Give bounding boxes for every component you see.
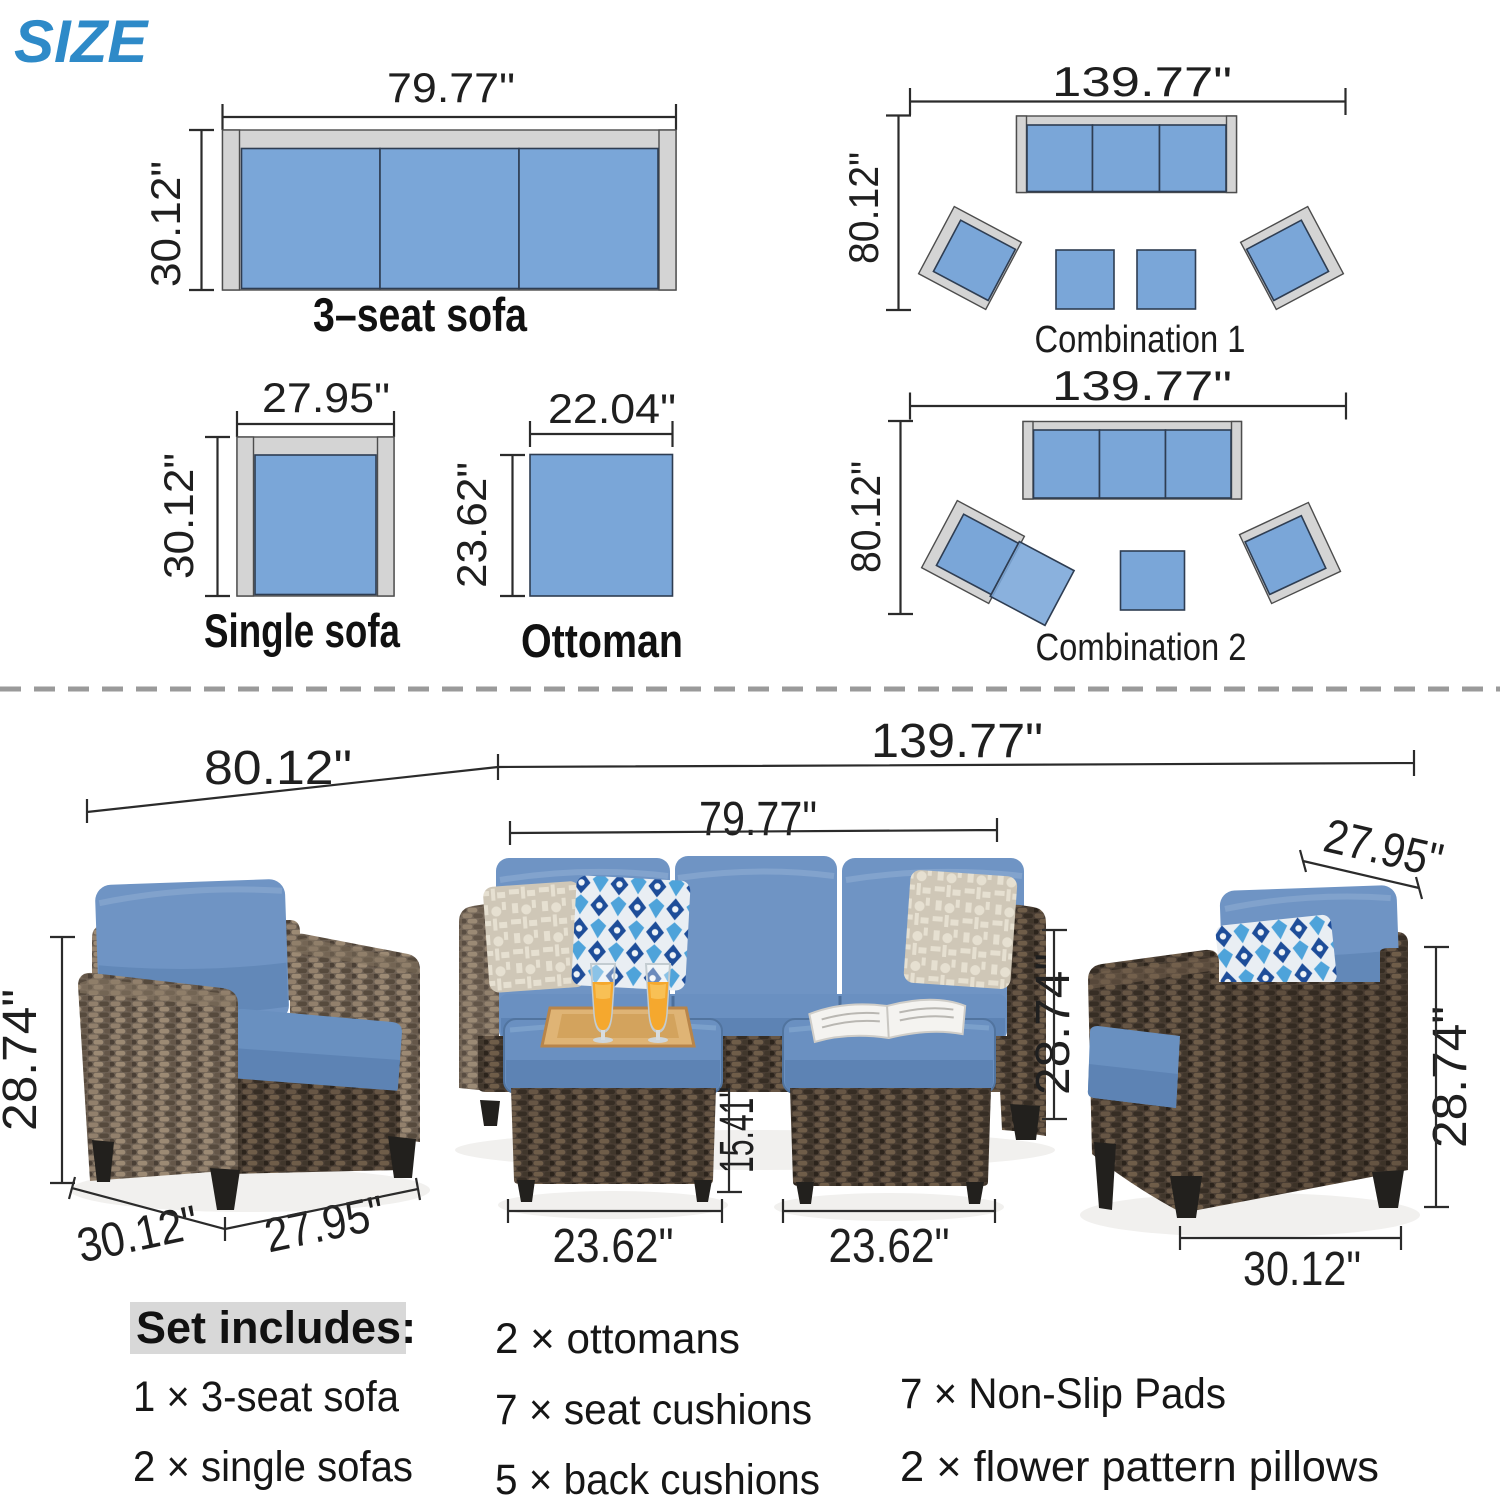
svg-text:30.12": 30.12" (73, 1196, 203, 1273)
svg-text:15.41": 15.41" (711, 1087, 764, 1173)
svg-text:2 × single sofas: 2 × single sofas (133, 1443, 413, 1491)
svg-text:2 × ottomans: 2 × ottomans (495, 1315, 740, 1363)
svg-text:80.12": 80.12" (840, 152, 887, 264)
svg-text:139.77": 139.77" (1052, 58, 1232, 105)
svg-text:Combination 2: Combination 2 (1036, 627, 1247, 669)
svg-text:80.12": 80.12" (204, 742, 352, 795)
svg-text:2 × flower pattern pillows: 2 × flower pattern pillows (900, 1443, 1379, 1491)
svg-text:3–seat sofa: 3–seat sofa (313, 288, 528, 341)
svg-text:23.62": 23.62" (553, 1220, 674, 1273)
svg-text:79.77": 79.77" (699, 793, 817, 846)
svg-text:28.74": 28.74" (1424, 1006, 1477, 1148)
svg-text:23.62": 23.62" (448, 462, 495, 588)
svg-text:7 × Non-Slip Pads: 7 × Non-Slip Pads (900, 1370, 1226, 1418)
svg-text:SIZE: SIZE (14, 8, 149, 75)
svg-text:28.74": 28.74" (0, 989, 47, 1131)
svg-text:1 × 3-seat sofa: 1 × 3-seat sofa (133, 1373, 399, 1421)
svg-text:80.12": 80.12" (842, 461, 889, 573)
svg-text:139.77": 139.77" (871, 715, 1043, 768)
svg-text:27.95": 27.95" (1319, 810, 1448, 889)
svg-text:23.62": 23.62" (829, 1220, 950, 1273)
svg-text:Single sofa: Single sofa (204, 604, 401, 657)
svg-text:30.12": 30.12" (142, 161, 189, 287)
svg-text:79.77": 79.77" (387, 64, 515, 111)
svg-text:Set includes:: Set includes: (136, 1302, 416, 1353)
svg-text:30.12": 30.12" (155, 453, 202, 579)
svg-text:139.77": 139.77" (1052, 362, 1232, 409)
svg-text:30.12": 30.12" (1243, 1243, 1361, 1296)
svg-text:Ottoman: Ottoman (521, 614, 683, 667)
svg-text:22.04": 22.04" (548, 385, 676, 432)
svg-text:Combination 1: Combination 1 (1035, 319, 1246, 361)
svg-text:7 × seat cushions: 7 × seat cushions (495, 1386, 812, 1434)
svg-text:5 × back cushions: 5 × back cushions (495, 1456, 820, 1500)
svg-text:27.95": 27.95" (262, 374, 390, 421)
